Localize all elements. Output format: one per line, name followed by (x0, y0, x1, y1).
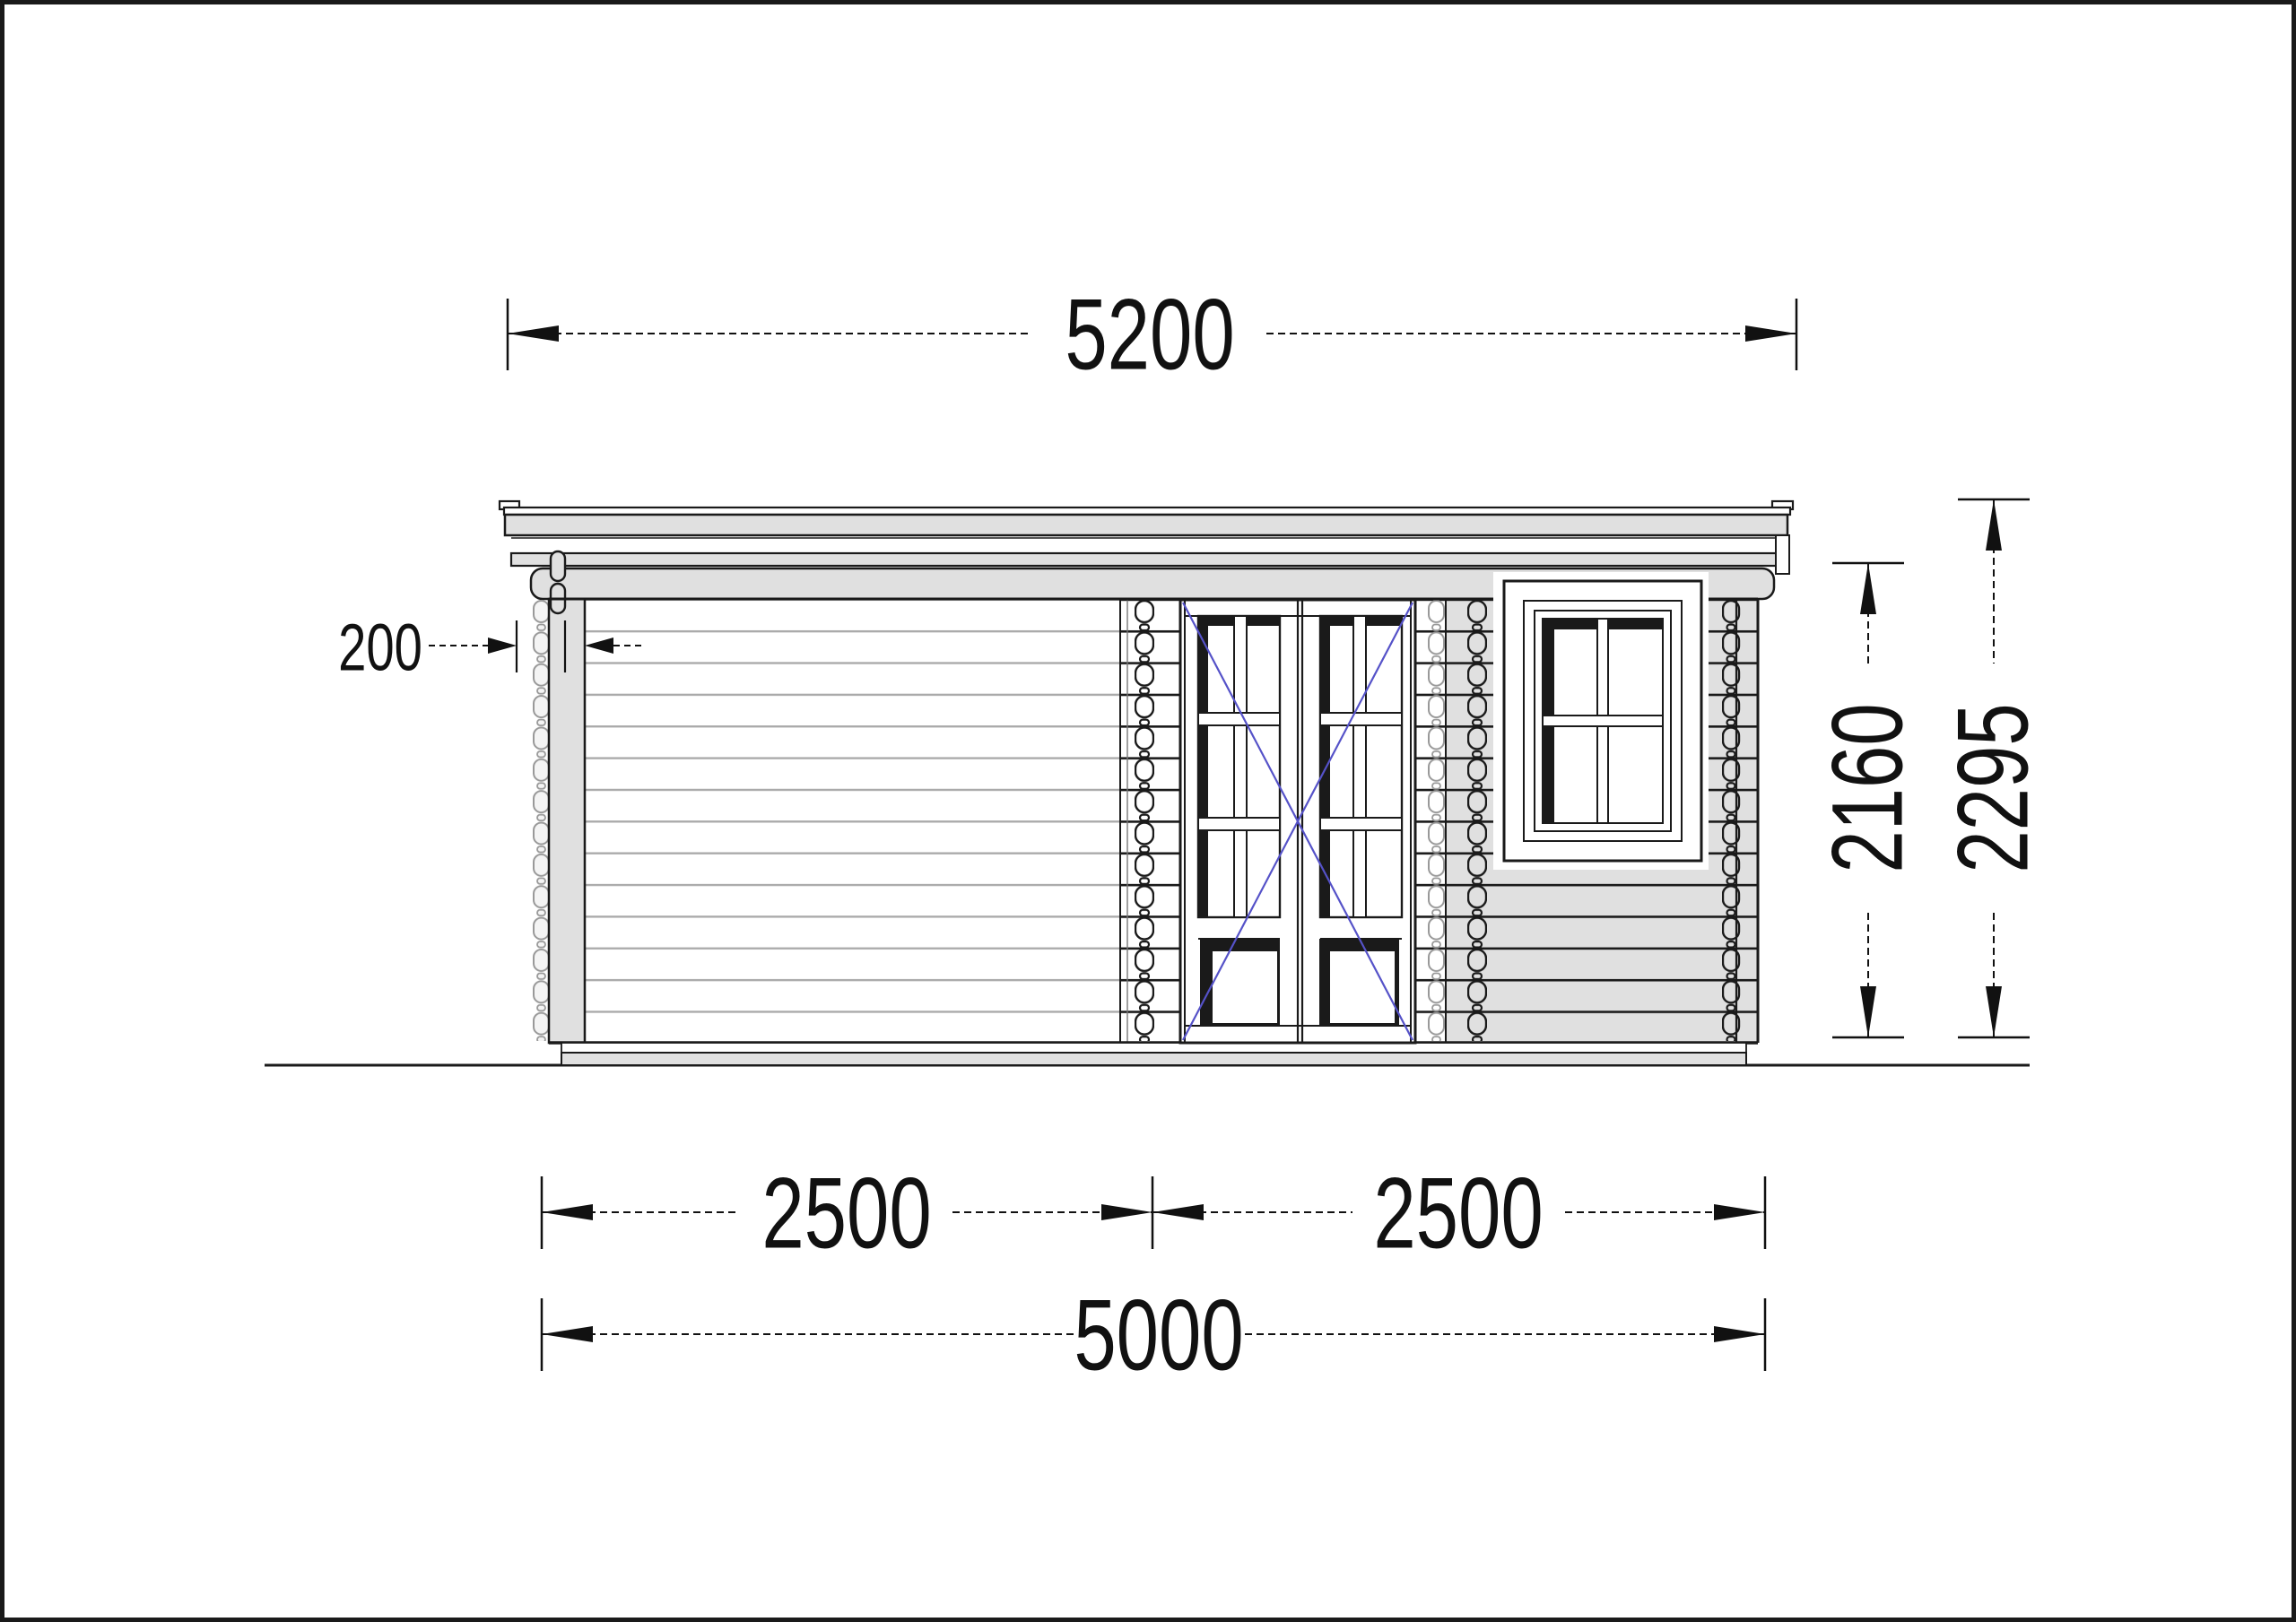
roof-fascia (505, 515, 1787, 535)
label-total-height: 2295 (1938, 703, 2050, 872)
floor-edge-band (561, 1043, 1746, 1053)
cabin-elevation-drawing: 5200 200 2160 2295 2500 2500 5000 (0, 0, 2296, 1622)
roof-trim-band (511, 553, 1781, 566)
door-leaf-left (1198, 616, 1280, 1026)
corner-right-log-ends (1722, 600, 1742, 1041)
corner-top-log-end-1 (551, 551, 565, 581)
window-muntin-horizontal (1543, 716, 1663, 726)
foundation-skirting (561, 1053, 1746, 1065)
label-roof-width: 5200 (1065, 280, 1234, 392)
wall-left-plank-lines (585, 599, 1120, 1043)
door-left-muntin-vertical (1234, 616, 1247, 917)
window-left-log-ends (1467, 600, 1487, 1041)
label-wall-height: 2160 (1813, 703, 1925, 872)
label-wall-width: 5000 (1074, 1280, 1243, 1392)
window (1493, 572, 1709, 870)
label-bay-right: 2500 (1373, 1158, 1543, 1271)
door-left-muntin-h2 (1198, 818, 1280, 830)
door-right-log-ends (1428, 600, 1446, 1041)
door-right-muntin-h2 (1320, 818, 1402, 830)
corner-post-left (549, 599, 585, 1043)
door-right-muntin-vertical (1353, 616, 1366, 917)
elevation-canvas: 5200 200 2160 2295 2500 2500 5000 (0, 0, 2296, 1622)
door-right-muntin-h1 (1320, 713, 1402, 725)
double-door (1180, 600, 1415, 1043)
door-left-panel-core (1213, 951, 1277, 1023)
label-overhang: 200 (338, 611, 422, 684)
roof-right-end-step (1776, 535, 1789, 574)
label-bay-left: 2500 (761, 1158, 931, 1271)
door-leaf-right (1319, 616, 1402, 1026)
door-left-muntin-h1 (1198, 713, 1280, 725)
door-left-log-ends (1135, 600, 1154, 1041)
door-left-glass-shadow-left (1198, 616, 1208, 917)
